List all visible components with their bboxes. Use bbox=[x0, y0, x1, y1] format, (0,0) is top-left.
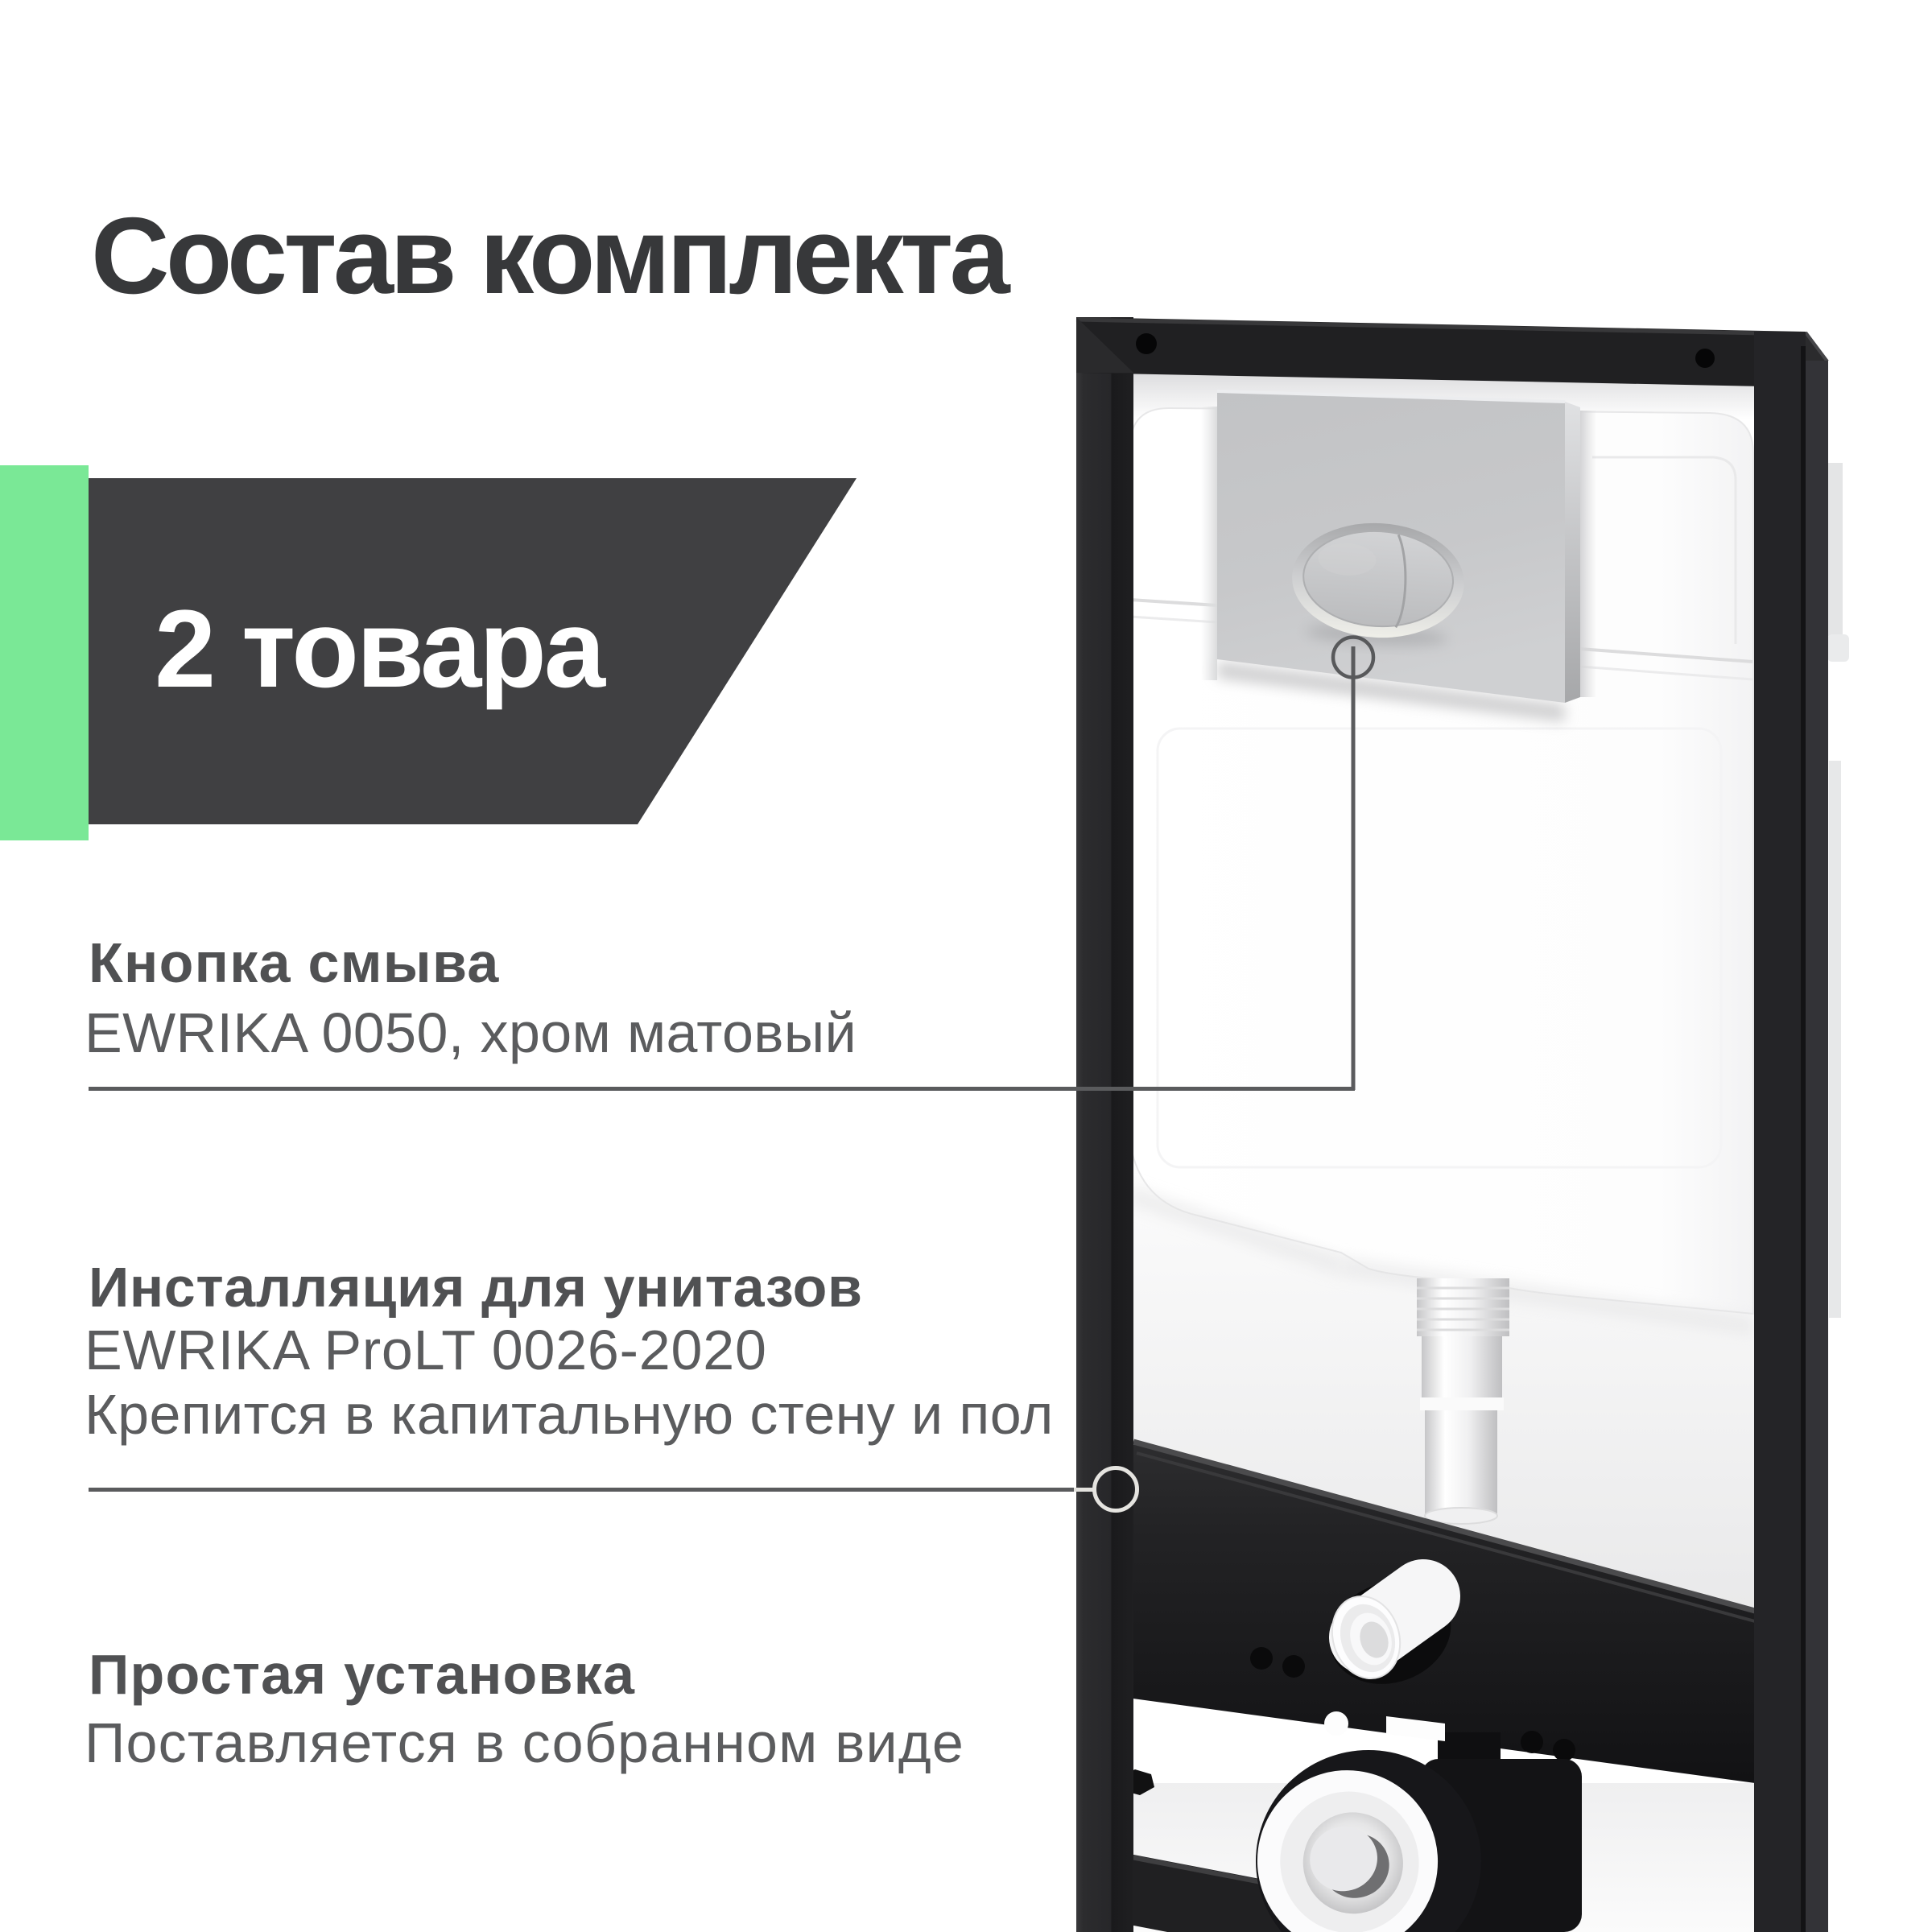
svg-text:Состав комплекта: Состав комплекта bbox=[91, 195, 1011, 316]
svg-text:Поставляется в собранном виде: Поставляется в собранном виде bbox=[85, 1711, 964, 1774]
svg-text:2 товара: 2 товара bbox=[155, 588, 607, 711]
svg-text:Кнопка смыва: Кнопка смыва bbox=[89, 931, 500, 994]
svg-text:Инсталляция для унитазов: Инсталляция для унитазов bbox=[89, 1256, 863, 1319]
svg-text:EWRIKA 0050, хром матовый: EWRIKA 0050, хром матовый bbox=[85, 1001, 857, 1064]
svg-text:Простая установка: Простая установка bbox=[89, 1643, 635, 1706]
svg-text:EWRIKA ProLT 0026-2020: EWRIKA ProLT 0026-2020 bbox=[85, 1319, 767, 1381]
svg-text:Крепится в капитальную стену и: Крепится в капитальную стену и пол bbox=[85, 1383, 1054, 1446]
